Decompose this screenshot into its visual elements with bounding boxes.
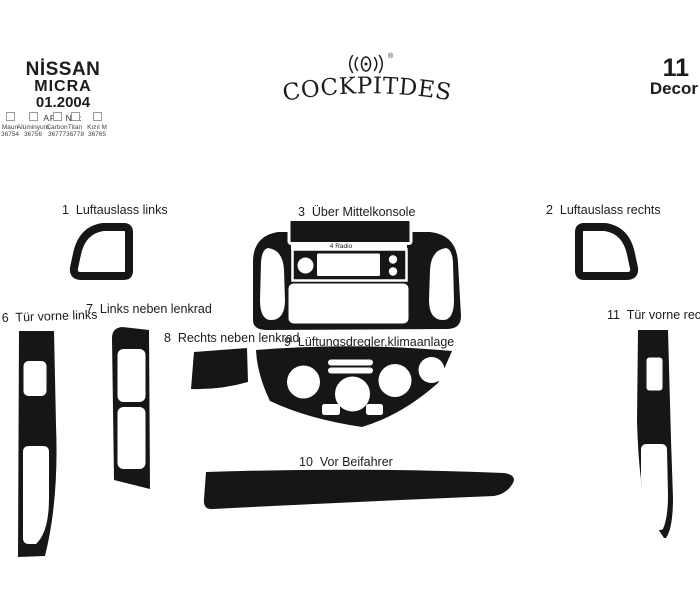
- part2-vent-right-shape: [579, 227, 634, 276]
- console-vent-cutout-right: [429, 248, 454, 320]
- radio-button-cutout-top: [389, 255, 397, 263]
- part9-dial-cutout-left: [287, 366, 320, 399]
- radio-display-cutout: [317, 254, 380, 277]
- part3-above-console-shape: [289, 220, 411, 244]
- part5-console-panel: [289, 284, 409, 324]
- radio-button-cutout-bottom: [389, 267, 397, 275]
- part9-slot-cutout-bottom: [328, 368, 373, 374]
- part11-door-right-group: [637, 330, 673, 538]
- part11-switch-cutout: [647, 358, 663, 391]
- part9-dial-cutout-center: [335, 377, 370, 412]
- part1-vent-left-shape: [74, 227, 129, 276]
- part10-passenger-strip-shape: [204, 470, 514, 509]
- part9-climate-group: [256, 346, 452, 427]
- radio-knob-cutout: [298, 258, 314, 274]
- part7-cutout-top: [118, 349, 146, 402]
- part9-dial-cutout-right: [379, 364, 412, 397]
- part7-cutout-bottom: [118, 407, 146, 469]
- part8-right-of-wheel-shape: [191, 348, 248, 389]
- part9-button-cutout-left: [322, 404, 340, 415]
- part7-left-of-wheel-group: [112, 327, 150, 489]
- console-vent-cutout-left: [260, 248, 285, 320]
- part6-switch-cutout: [24, 361, 47, 396]
- svg-text:COCKPITDESIGN: COCKPITDESIGN: [0, 0, 453, 107]
- logo-eye-icon: [350, 56, 383, 73]
- part9-button-cutout-right: [366, 404, 383, 415]
- label-part-4: 4 Radio: [291, 243, 391, 250]
- part9-dial-cutout-far-right: [419, 357, 445, 383]
- center-console-group: [253, 220, 461, 331]
- part6-door-left-group: [18, 331, 57, 557]
- cockpit-design-logo: COCKPITDESIGN: [0, 0, 453, 107]
- product-sheet: NİSSAN MICRA 01.2004 ART NR: Maun 36754 …: [0, 0, 700, 608]
- part11-handle-cutout: [641, 444, 668, 530]
- part9-slot-cutout-top: [328, 360, 373, 366]
- parts-diagram: COCKPITDESIGN: [0, 0, 700, 608]
- logo-text: COCKPITDESIGN: [0, 0, 453, 107]
